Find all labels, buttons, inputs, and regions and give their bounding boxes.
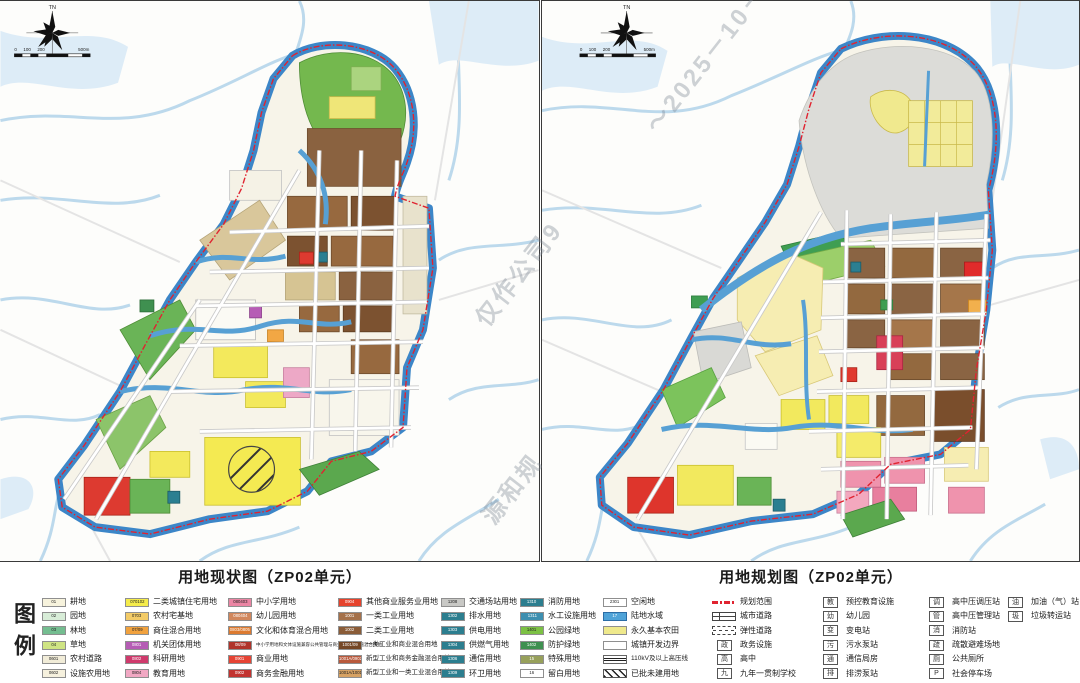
legend-swatch-fill: 1208 xyxy=(441,598,465,607)
legend-swatch-fill: 0801 xyxy=(125,641,149,650)
legend-item: 1001A/0902新型工业和商务金融混合用地 xyxy=(338,652,451,666)
legend-swatch-boundary xyxy=(712,601,736,604)
社会停车场-icon: P xyxy=(934,670,939,677)
预控教育设施-icon: 教 xyxy=(827,599,834,606)
legend-label: 耕地 xyxy=(70,598,86,606)
legend-label: 预控教育设施 xyxy=(846,598,894,606)
legend-label: 其他商业服务业用地 xyxy=(366,598,438,606)
legend-item: 1002二类工业用地 xyxy=(338,624,451,638)
legend-label: 二类城镇住宅用地 xyxy=(153,598,217,606)
legend-item: 消消防站 xyxy=(924,624,1000,638)
legend-label: 供燃气用地 xyxy=(469,641,509,649)
政务设施-icon: 政 xyxy=(721,642,728,649)
legend-item: 1311水工设施用地 xyxy=(520,609,596,623)
legend-item: 110kV及以上高压线 xyxy=(603,652,688,666)
legend-swatch-fill: 15 xyxy=(520,655,544,664)
legend: 图例 01耕地02园地03林地04草地0601农村道路0602设施农用地 070… xyxy=(0,592,1080,683)
legend-item: 0703农村宅基地 xyxy=(125,609,217,623)
legend-label: 机关团体用地 xyxy=(153,641,201,649)
legend-label: 陆地水域 xyxy=(631,612,663,620)
legend-swatch-fill: 04 xyxy=(42,641,66,650)
legend-swatch-fill: 0804 xyxy=(125,669,149,678)
legend-swatch-box: 油 xyxy=(1008,597,1023,608)
legend-column-7: 2301空闲地17陆地水域永久基本农田城镇开发边界110kV及以上高压线已批未建… xyxy=(603,595,688,681)
legend-item: 永久基本农田 xyxy=(603,624,688,638)
legend-label: 城市道路 xyxy=(740,612,772,620)
legend-swatch-fill: 17 xyxy=(603,612,627,621)
九年一贯制学校-icon: 九 xyxy=(721,670,728,677)
legend-swatch-fill: 0602 xyxy=(42,669,66,678)
legend-swatch-box: 通 xyxy=(823,654,838,665)
legend-item: 1303供电用地 xyxy=(441,624,517,638)
legend-swatch-fill: 080403 xyxy=(228,598,252,607)
加油（气）站-icon: 油 xyxy=(1012,599,1019,606)
legend-item: 通通信局房 xyxy=(818,652,894,666)
legend-label: 高中压管理站 xyxy=(952,612,1000,620)
legend-item: 污污水泵站 xyxy=(818,638,894,652)
legend-swatch-fill: 0703 xyxy=(125,612,149,621)
排涝泵站-icon: 排 xyxy=(827,670,834,677)
svg-text:200: 200 xyxy=(37,47,45,52)
legend-swatch-box: 消 xyxy=(929,625,944,636)
legend-swatch-fill: 0802 xyxy=(125,655,149,664)
legend-column-9: 教预控教育设施幼幼儿园变变电站污污水泵站通通信局房排排涝泵站 xyxy=(818,595,894,681)
legend-swatch-box: 政 xyxy=(717,640,732,651)
legend-swatch-fill: 1309 xyxy=(441,669,465,678)
legend-swatch-box: 排 xyxy=(823,668,838,679)
legend-item: 0804教育用地 xyxy=(125,666,217,680)
legend-swatch-fill: 03 xyxy=(42,626,66,635)
legend-item: 城镇开发边界 xyxy=(603,638,688,652)
legend-label: 防护绿地 xyxy=(548,641,580,649)
legend-label: 二类工业用地 xyxy=(366,627,414,635)
legend-swatch-fill: 1001A/1001 xyxy=(338,669,362,678)
legend-swatch-fill: 0904 xyxy=(338,598,362,607)
legend-swatch-fill xyxy=(603,626,627,635)
legend-swatch-road xyxy=(712,612,736,621)
legend-item: 已批未建用地 xyxy=(603,666,688,680)
legend-label: 幼儿园 xyxy=(846,612,870,620)
legend-swatch-box: 污 xyxy=(823,640,838,651)
legend-label: 商业用地 xyxy=(256,655,288,663)
变电站-icon: 变 xyxy=(827,627,834,634)
legend-label: 交通场站用地 xyxy=(469,598,517,606)
legend-column-4: 0904其他商业服务业用地1001一类工业用地1002二类工业用地1001/09… xyxy=(338,595,451,681)
legend-label: 变电站 xyxy=(846,627,870,635)
legend-item: 17陆地水域 xyxy=(603,609,688,623)
legend-swatch-fill: 16 xyxy=(520,669,544,678)
legend-item: 03林地 xyxy=(42,624,110,638)
legend-label: 供电用地 xyxy=(469,627,501,635)
legend-label: 环卫用地 xyxy=(469,670,501,678)
legend-label: 文化和体育混合用地 xyxy=(256,627,328,635)
legend-label: 规划范围 xyxy=(740,598,772,606)
legend-column-10: 调高中压调压站管高中压管理站消消防站疏疏散避难场地厕公共厕所P社会停车场 xyxy=(924,595,1000,681)
legend-label: 公共厕所 xyxy=(952,655,984,663)
legend-item: 1310消防用地 xyxy=(520,595,596,609)
legend-item: 2301空闲地 xyxy=(603,595,688,609)
legend-label: 高中压调压站 xyxy=(952,598,1000,606)
legend-swatch-fill: 08/09 xyxy=(228,641,252,650)
疏散避难场地-icon: 疏 xyxy=(933,642,940,649)
map-title-current: 用地现状图（ZP02单元） xyxy=(0,566,540,588)
legend-item: 城市道路 xyxy=(712,609,796,623)
消防站-icon: 消 xyxy=(933,627,940,634)
legend-label: 消防用地 xyxy=(548,598,580,606)
legend-swatch-fill: 1302 xyxy=(441,612,465,621)
legend-item: 排排涝泵站 xyxy=(818,666,894,680)
legend-item: 07/09商住混合用地 xyxy=(125,624,217,638)
legend-swatch-fill: 2301 xyxy=(603,598,627,607)
plan-sheet: TN 0 100 200 500m xyxy=(0,0,1080,683)
svg-text:100: 100 xyxy=(589,47,597,52)
通信局房-icon: 通 xyxy=(827,656,834,663)
legend-swatch-fill: 1401 xyxy=(520,626,544,635)
legend-item: 1001一类工业用地 xyxy=(338,609,451,623)
legend-swatch-fill: 0601 xyxy=(42,655,66,664)
legend-swatch-roaddash xyxy=(712,626,736,635)
legend-item: 1208交通场站用地 xyxy=(441,595,517,609)
legend-swatch-fill: 080404 xyxy=(228,612,252,621)
legend-swatch-fill: 1303 xyxy=(441,626,465,635)
legend-label: 消防站 xyxy=(952,627,976,635)
legend-column-1: 01耕地02园地03林地04草地0601农村道路0602设施农用地 xyxy=(42,595,110,681)
legend-item: 1402防护绿地 xyxy=(520,638,596,652)
legend-label: 科研用地 xyxy=(153,655,185,663)
legend-swatch-box: 疏 xyxy=(929,640,944,651)
legend-swatch-box: 管 xyxy=(929,611,944,622)
legend-swatch-box: 教 xyxy=(823,597,838,608)
legend-label: 幼儿园用地 xyxy=(256,612,296,620)
高中-icon: 高 xyxy=(721,656,728,663)
legend-swatch-fill: 1311 xyxy=(520,612,544,621)
legend-item: 高高中 xyxy=(712,652,796,666)
legend-label: 九年一贯制学校 xyxy=(740,670,796,678)
legend-label: 中小学用地 xyxy=(256,598,296,606)
legend-label: 商住混合用地 xyxy=(153,627,201,635)
legend-label: 公园绿地 xyxy=(548,627,580,635)
legend-label: 留白用地 xyxy=(548,670,580,678)
legend-swatch-box: 幼 xyxy=(823,611,838,622)
map-current-canvas: TN 0 100 200 500m xyxy=(0,1,539,561)
legend-swatch-fill: 1001/09 xyxy=(338,641,362,650)
legend-label: 政务设施 xyxy=(740,641,772,649)
map-planned-landuse[interactable]: TN 0 100 200 500m xyxy=(541,0,1080,562)
legend-label: 高中 xyxy=(740,655,756,663)
legend-swatch-fill: 1001A/0902 xyxy=(338,655,362,664)
legend-column-6: 1310消防用地1311水工设施用地1401公园绿地1402防护绿地15特殊用地… xyxy=(520,595,596,681)
legend-item: 070102二类城镇住宅用地 xyxy=(125,595,217,609)
高中压管理站-icon: 管 xyxy=(933,613,940,620)
legend-swatch-box: 调 xyxy=(929,597,944,608)
legend-item: 管高中压管理站 xyxy=(924,609,1000,623)
legend-label: 垃圾转运站 xyxy=(1031,612,1071,620)
legend-item: 1304供燃气用地 xyxy=(441,638,517,652)
legend-item: 1302排水用地 xyxy=(441,609,517,623)
legend-item: 04草地 xyxy=(42,638,110,652)
legend-item: 油加油（气）站 xyxy=(1003,595,1079,609)
legend-label: 教育用地 xyxy=(153,670,185,678)
legend-item: 幼幼儿园 xyxy=(818,609,894,623)
legend-title: 图例 xyxy=(8,602,38,666)
legend-label: 一类工业用地 xyxy=(366,612,414,620)
legend-label: 社会停车场 xyxy=(952,670,992,678)
legend-item: 调高中压调压站 xyxy=(924,595,1000,609)
legend-column-11: 油加油（气）站圾垃圾转运站 xyxy=(1003,595,1079,624)
legend-label: 已批未建用地 xyxy=(631,670,679,678)
垃圾转运站-icon: 圾 xyxy=(1012,613,1019,620)
legend-swatch-box: 九 xyxy=(717,668,732,679)
legend-swatch-fill: 1304 xyxy=(441,641,465,650)
map-current-landuse[interactable]: TN 0 100 200 500m xyxy=(0,0,540,562)
legend-item: 0602设施农用地 xyxy=(42,666,110,680)
legend-label: 商务金融用地 xyxy=(256,670,304,678)
legend-swatch-power xyxy=(603,655,627,664)
legend-label: 设施农用地 xyxy=(70,670,110,678)
svg-text:200: 200 xyxy=(603,47,611,52)
legend-label: 空闲地 xyxy=(631,598,655,606)
svg-text:500m: 500m xyxy=(644,47,655,52)
legend-item: 0601农村道路 xyxy=(42,652,110,666)
legend-label: 加油（气）站 xyxy=(1031,598,1079,606)
legend-label: 永久基本农田 xyxy=(631,627,679,635)
legend-swatch-hatch xyxy=(603,669,627,678)
legend-swatch-fill: 02 xyxy=(42,612,66,621)
legend-label: 疏散避难场地 xyxy=(952,641,1000,649)
legend-item: 0904其他商业服务业用地 xyxy=(338,595,451,609)
legend-swatch-fill: 07/09 xyxy=(125,626,149,635)
legend-label: 排涝泵站 xyxy=(846,670,878,678)
legend-label: 草地 xyxy=(70,641,86,649)
legend-swatch-fill: 1001 xyxy=(338,612,362,621)
legend-label: 水工设施用地 xyxy=(548,612,596,620)
legend-label: 园地 xyxy=(70,612,86,620)
legend-column-8: 规划范围城市道路弹性道路政政务设施高高中九九年一贯制学校 xyxy=(712,595,796,681)
legend-label: 城镇开发边界 xyxy=(631,641,679,649)
legend-label: 通信局房 xyxy=(846,655,878,663)
legend-item: 1309环卫用地 xyxy=(441,666,517,680)
legend-item: 15特殊用地 xyxy=(520,652,596,666)
svg-text:500m: 500m xyxy=(78,47,89,52)
legend-swatch-fill: 1002 xyxy=(338,626,362,635)
幼儿园-icon: 幼 xyxy=(827,613,834,620)
legend-label: 通信用地 xyxy=(469,655,501,663)
compass-label: TN xyxy=(49,5,56,11)
legend-label: 弹性道路 xyxy=(740,627,772,635)
legend-item: 0801机关团体用地 xyxy=(125,638,217,652)
legend-item: 九九年一贯制学校 xyxy=(712,666,796,680)
legend-item: 01耕地 xyxy=(42,595,110,609)
legend-label: 排水用地 xyxy=(469,612,501,620)
legend-swatch-fill: 0803/0805 xyxy=(228,626,252,635)
高中压调压站-icon: 调 xyxy=(933,599,940,606)
legend-column-5: 1208交通场站用地1302排水用地1303供电用地1304供燃气用地1306通… xyxy=(441,595,517,681)
map-planned-canvas: TN 0 100 200 500m xyxy=(542,1,1079,561)
legend-item: 1306通信用地 xyxy=(441,652,517,666)
污水泵站-icon: 污 xyxy=(827,642,834,649)
legend-label: 新型工业和商务金融混合用地 xyxy=(366,656,451,663)
legend-label: 农村宅基地 xyxy=(153,612,193,620)
compass-label: TN xyxy=(623,5,630,11)
legend-label: 林地 xyxy=(70,627,86,635)
legend-swatch-fill: 0901 xyxy=(228,655,252,664)
legend-label: 污水泵站 xyxy=(846,641,878,649)
legend-swatch-fill: 1310 xyxy=(520,598,544,607)
legend-item: 教预控教育设施 xyxy=(818,595,894,609)
legend-swatch-box: 高 xyxy=(717,654,732,665)
legend-item: 0802科研用地 xyxy=(125,652,217,666)
legend-label: 农村道路 xyxy=(70,655,102,663)
legend-item: 疏疏散避难场地 xyxy=(924,638,1000,652)
legend-item: 02园地 xyxy=(42,609,110,623)
legend-item: 圾垃圾转运站 xyxy=(1003,609,1079,623)
legend-column-2: 070102二类城镇住宅用地0703农村宅基地07/09商住混合用地0801机关… xyxy=(125,595,217,681)
svg-text:100: 100 xyxy=(23,47,31,52)
legend-item: 规划范围 xyxy=(712,595,796,609)
legend-label: 110kV及以上高压线 xyxy=(631,656,688,663)
legend-item: 16留白用地 xyxy=(520,666,596,680)
legend-item: P社会停车场 xyxy=(924,666,1000,680)
legend-swatch-fill: 01 xyxy=(42,598,66,607)
legend-swatch-box: 变 xyxy=(823,625,838,636)
map-title-planned: 用地规划图（ZP02单元） xyxy=(542,566,1080,588)
legend-swatch-box: 圾 xyxy=(1008,611,1023,622)
legend-swatch-box: P xyxy=(929,668,944,679)
legend-item: 政政务设施 xyxy=(712,638,796,652)
legend-item: 厕公共厕所 xyxy=(924,652,1000,666)
legend-swatch-fill: 1306 xyxy=(441,655,465,664)
legend-item: 1001/09一类工业和商业混合用地 xyxy=(338,638,451,652)
legend-swatch-fill: 1402 xyxy=(520,641,544,650)
legend-item: 变变电站 xyxy=(818,624,894,638)
legend-swatch-fill: 0902 xyxy=(228,669,252,678)
legend-item: 弹性道路 xyxy=(712,624,796,638)
公共厕所-icon: 厕 xyxy=(933,656,940,663)
legend-swatch-box: 厕 xyxy=(929,654,944,665)
legend-swatch-fill xyxy=(603,641,627,650)
legend-item: 1001A/1001新型工业和一类工业混合用地 xyxy=(338,666,451,680)
legend-label: 一类工业和商业混合用地 xyxy=(366,642,438,649)
legend-label: 特殊用地 xyxy=(548,655,580,663)
legend-label: 新型工业和一类工业混合用地 xyxy=(366,670,451,677)
legend-item: 1401公园绿地 xyxy=(520,624,596,638)
legend-swatch-fill: 070102 xyxy=(125,598,149,607)
